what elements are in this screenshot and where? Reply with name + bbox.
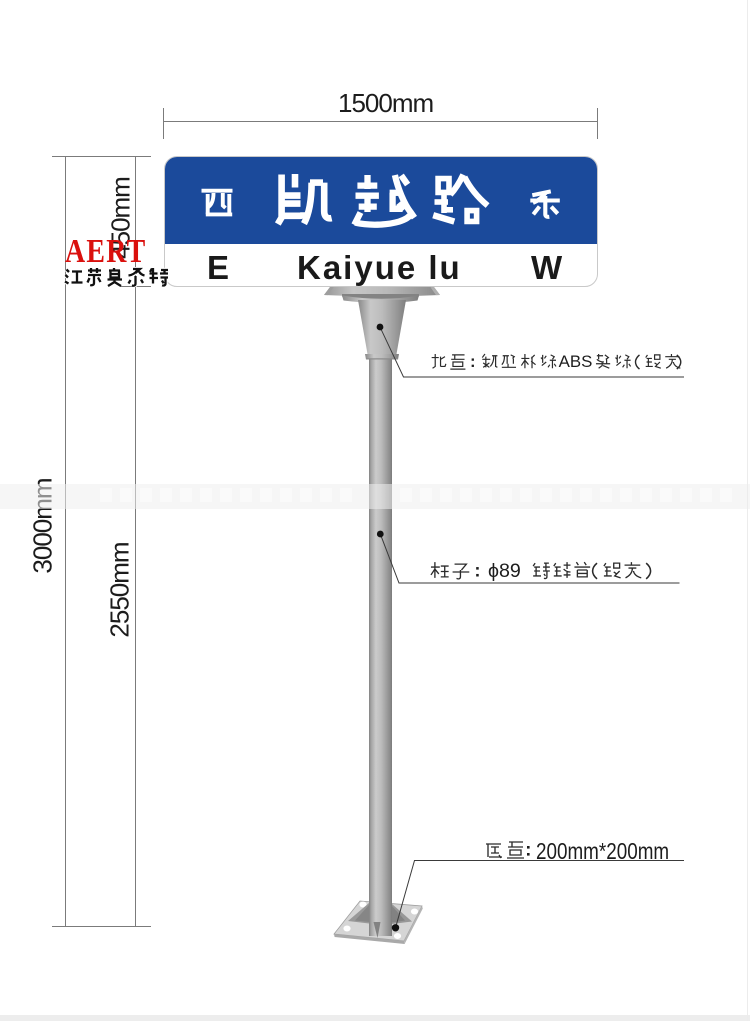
svg-text:ABS: ABS	[559, 352, 593, 371]
svg-text:ϕ89: ϕ89	[488, 560, 521, 582]
